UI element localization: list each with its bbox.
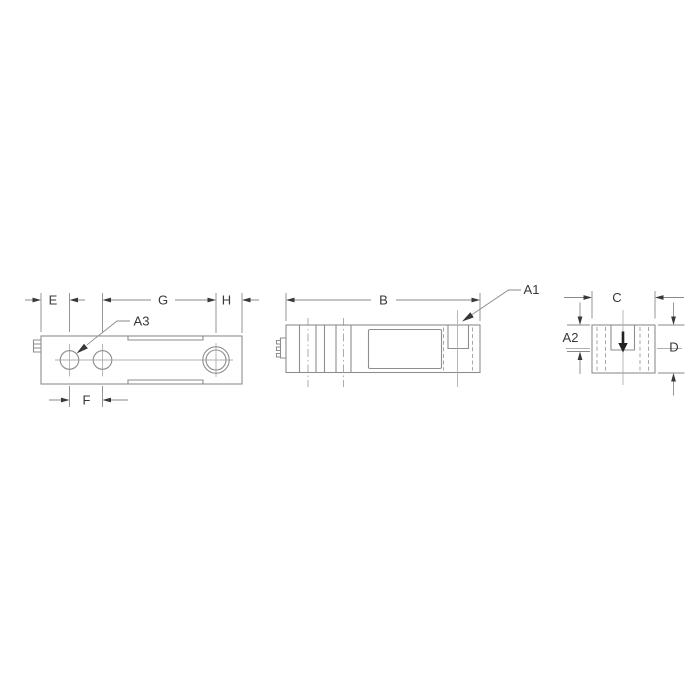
top-view [34,336,243,384]
arrowhead-e-right [70,298,79,303]
arrowhead-g-left [103,298,112,303]
arrowhead-a2-bottom [578,352,583,361]
leader-line-a3 [87,321,130,345]
extension-lines-c [592,291,655,319]
dim-label-c: C [612,290,621,305]
arrowhead-g-right [208,298,217,303]
callout-label-a1: A1 [524,282,540,297]
arrowhead-c-right [655,295,664,300]
arrowhead-b-left [286,298,295,303]
end-view [566,310,682,385]
dim-label-h: H [222,293,231,308]
arrowhead-c-left [584,295,593,300]
leader-line-a1 [471,290,521,315]
arrowhead-e-left [33,298,42,303]
callout-a3: A3 [77,314,150,354]
dim-d: D [658,303,685,396]
dim-label-b: B [379,293,388,308]
arrowhead-f-right [103,398,112,403]
dim-f: F [49,386,128,408]
bolt-hole-centerlines [308,318,344,387]
cable-gland-top [34,340,42,352]
bottom-recess-line [128,380,203,384]
arrowhead-d-top [671,317,676,326]
nameplate [369,330,442,369]
arrowhead-b-right [472,298,481,303]
leader-arrowhead-a1 [462,312,474,321]
top-recess-line [128,336,203,340]
side-view [277,310,481,387]
callout-label-a3: A3 [134,314,150,329]
arrowhead-d-bottom [671,373,676,382]
dim-a2: A2 [563,303,590,375]
arrowhead-h-right [242,298,251,303]
arrowhead-a2-top [578,317,583,326]
load-cell-dimension-drawing: E G H F A3 B A1 [0,0,700,700]
dim-label-e: E [49,293,58,308]
cable-gland-side [277,338,287,358]
drawing-canvas: E G H F A3 B A1 [0,0,700,700]
load-direction-arrow-head [618,343,627,353]
dim-label-f: F [83,393,91,408]
arrowhead-f-left [61,398,70,403]
dim-label-a2: A2 [563,330,579,345]
leader-arrowhead-a3 [77,344,88,354]
dim-label-g: G [158,293,168,308]
dim-c: C [564,290,684,319]
dim-label-d: D [669,340,678,355]
load-hole-notch [448,325,469,349]
dim-b: B [286,293,480,322]
